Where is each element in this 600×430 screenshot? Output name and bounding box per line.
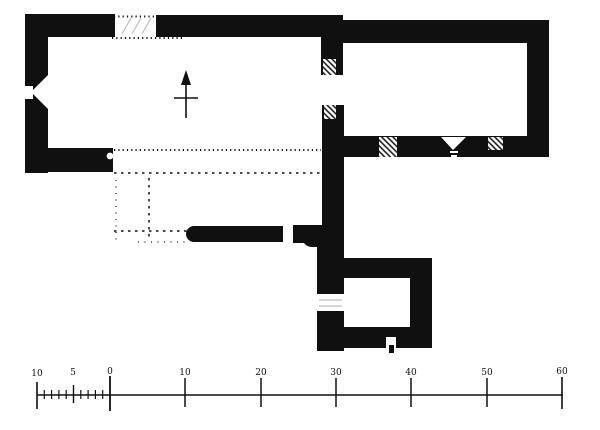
scale-label: 50: [481, 368, 493, 378]
wall-segment: [317, 327, 432, 348]
wall-segment: [317, 247, 344, 294]
scanned-floor-plan-page: 10 5 0 10 20 30 40 50 60: [0, 0, 600, 430]
scale-label: 30: [330, 368, 342, 378]
wall-end-marker: [107, 153, 114, 160]
wall-segment: [343, 20, 548, 43]
wall-segment: [25, 148, 113, 172]
hatched-jamb: [323, 59, 336, 75]
scale-label: 20: [255, 368, 267, 378]
south-window-slit: [451, 155, 457, 157]
wall-segment: [322, 157, 344, 229]
wall-segment: [336, 136, 548, 157]
hatched-wall-section: [488, 137, 503, 150]
wall-stub: [389, 345, 394, 353]
scale-label: 40: [405, 368, 417, 378]
scale-label: 5: [70, 368, 76, 378]
scale-label: 0: [107, 367, 113, 377]
wall-segment: [156, 15, 343, 37]
window-slit: [25, 86, 33, 99]
wall-segment: [194, 226, 283, 242]
floor-plan-figure: 10 5 0 10 20 30 40 50 60: [0, 0, 600, 430]
hatched-jamb: [324, 105, 336, 119]
hatched-wall-section: [379, 137, 397, 157]
paper-background: [0, 0, 600, 430]
scale-label: 60: [556, 367, 568, 377]
aisle-south-wall: [186, 225, 323, 243]
scale-label: 10: [31, 369, 43, 379]
wall-segment: [312, 227, 344, 247]
scale-label: 10: [179, 368, 191, 378]
south-window-slit: [450, 151, 458, 153]
